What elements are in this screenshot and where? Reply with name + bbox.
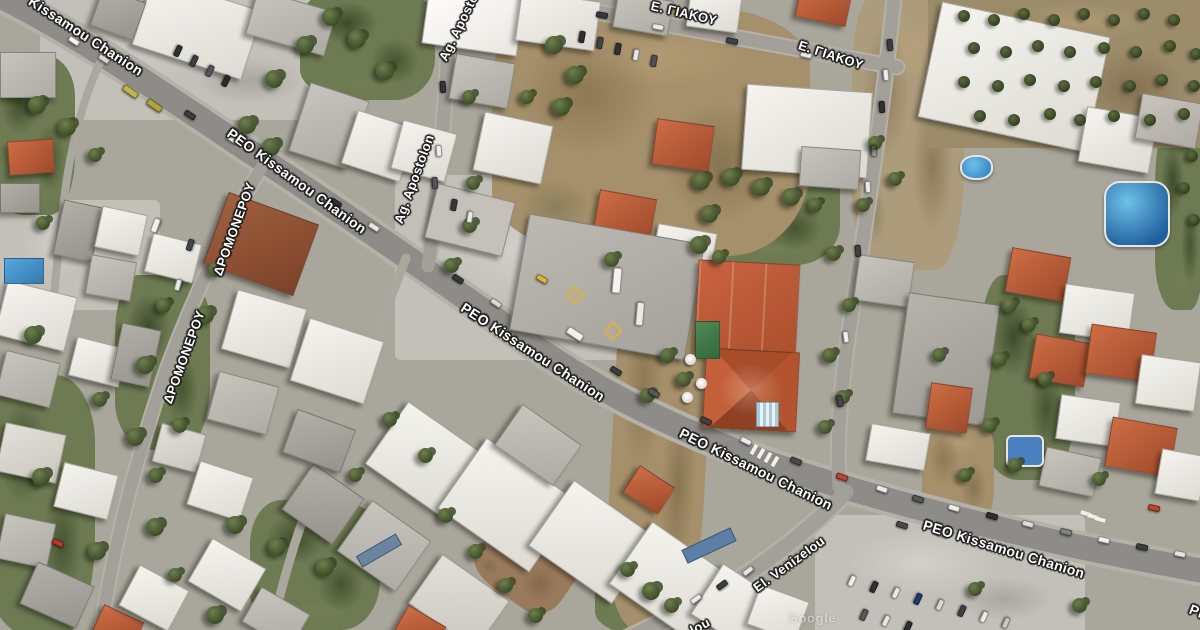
street-label-peo-fragment: PE [1187, 601, 1200, 623]
street-label-ag-apostolon-1: Ag. Apostolon [436, 0, 490, 63]
street-label-e-giakou-2: Ε. ΓΙΑΚΟΥ [797, 37, 866, 72]
street-label-peo-kissamou-chanion-3: PEO Kissamou Chanion [677, 425, 835, 513]
labels-layer: Kissamou Chanion PEO Kissamou Chanion PE… [0, 0, 1200, 630]
street-label-dromonerou-1: ΔΡΟΜΟΝΕΡΟΥ [210, 180, 258, 277]
google-watermark: Google [788, 611, 836, 626]
street-label-peo-kissamou-chanion-4: PEO Kissamou Chanion [921, 517, 1087, 581]
street-label-el-venizelou: El. Venizelou [750, 533, 827, 595]
street-label-ag-apostolon-2: Ag. Apostolon [391, 132, 437, 225]
street-label-dromonerou-2: ΔΡΟΜΟΝΕΡΟΥ [160, 308, 208, 405]
satellite-map-viewport[interactable]: Kissamou Chanion PEO Kissamou Chanion PE… [0, 0, 1200, 630]
street-label-kissamou-chanion-nw: Kissamou Chanion [26, 0, 146, 79]
street-label-e-giakou-1: Ε. ΓΙΑΚΟΥ [649, 0, 718, 28]
street-label-peo-kissamou-chanion-2: PEO Kissamou Chanion [458, 299, 608, 404]
street-label-venizelou-fragment: lou [687, 615, 712, 630]
